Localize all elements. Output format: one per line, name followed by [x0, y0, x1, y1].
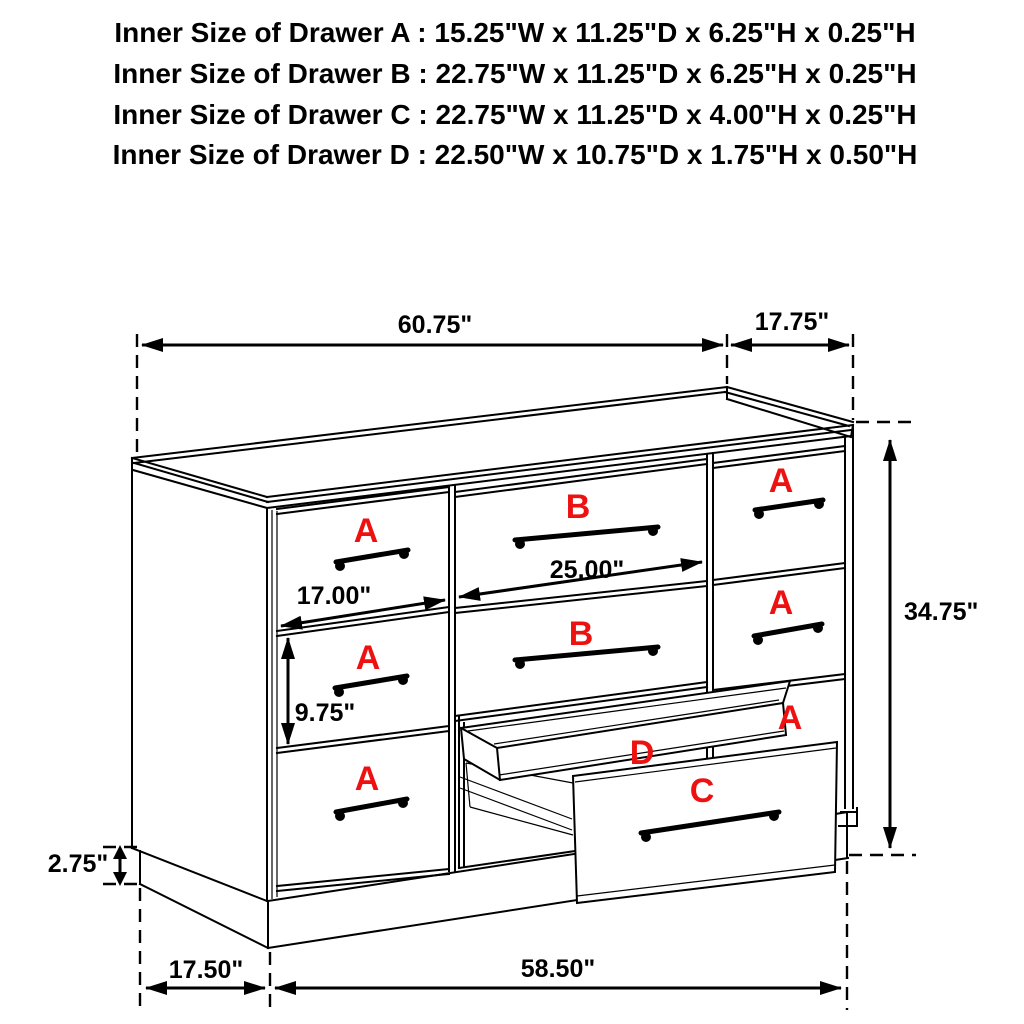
drawer-letter-tray-d: D: [630, 734, 655, 772]
dimensions: 60.75" 17.75" 34.75" 17.00" 25.00" 9.75"…: [48, 308, 979, 988]
drawer-handle-left-top: [335, 549, 409, 571]
dimension-label-floor-depth: 17.50": [169, 956, 243, 984]
drawer-handle-right-top: [754, 499, 824, 519]
dimension-label-drawer-b-width: 25.00": [550, 556, 624, 584]
dimension-floor-depth: 17.50": [146, 956, 265, 988]
dimension-top-width: 60.75": [142, 311, 723, 345]
dimension-label-overall-height: 34.75": [904, 598, 978, 626]
drawer-handle-right-middle: [753, 623, 823, 645]
dimension-floor-width: 58.50": [275, 955, 841, 988]
drawer-letter-c: C: [690, 772, 715, 810]
dimension-top-depth: 17.75": [731, 308, 849, 345]
dimension-label-top-depth: 17.75": [755, 308, 829, 336]
size-note-line-2: Inner Size of Drawer B : 22.75"W x 11.25…: [113, 58, 916, 89]
dimension-overall-height: 34.75": [890, 440, 978, 848]
dimension-label-floor-width: 58.50": [521, 955, 595, 983]
extension-dashed-lines: [103, 334, 916, 1014]
size-note-line-1: Inner Size of Drawer A : 15.25"W x 11.25…: [114, 17, 915, 48]
drawer-handle-middle-top: [515, 526, 658, 549]
drawer-letter-right-middle: A: [769, 584, 794, 622]
dimension-label-drawer-a-width: 17.00": [297, 582, 371, 610]
size-note-line-3: Inner Size of Drawer C : 22.75"W x 11.25…: [113, 99, 916, 130]
cabinet-top-lines: [132, 387, 853, 508]
drawer-letter-left-bottom: A: [355, 760, 380, 798]
dimension-label-base-height: 2.75": [48, 850, 109, 878]
dimension-label-drawer-section-height: 9.75": [295, 699, 356, 727]
diagram-canvas: Inner Size of Drawer A : 15.25"W x 11.25…: [0, 0, 1024, 1024]
drawer-letter-left-top: A: [354, 512, 379, 550]
size-note-line-4: Inner Size of Drawer D : 22.50"W x 10.75…: [113, 139, 918, 170]
drawer-handle-left-middle: [334, 675, 408, 697]
drawer-letter-middle-second: B: [569, 615, 594, 653]
drawer-handle-left-bottom: [335, 798, 408, 821]
drawer-letter-right-top: A: [769, 462, 794, 500]
dimension-drawer-section-height: 9.75": [288, 638, 355, 744]
dresser-dimension-diagram: Inner Size of Drawer A : 15.25"W x 11.25…: [0, 0, 1024, 1024]
drawer-letter-middle-top: B: [566, 488, 591, 526]
dimension-base-height: 2.75": [48, 845, 127, 886]
cabinet-left-panel-lines: [132, 458, 277, 901]
drawer-letter-right-lower: A: [778, 699, 803, 737]
dimension-label-top-width: 60.75": [398, 311, 472, 339]
drawer-letter-left-middle: A: [356, 639, 381, 677]
size-notes: Inner Size of Drawer A : 15.25"W x 11.25…: [113, 17, 918, 170]
